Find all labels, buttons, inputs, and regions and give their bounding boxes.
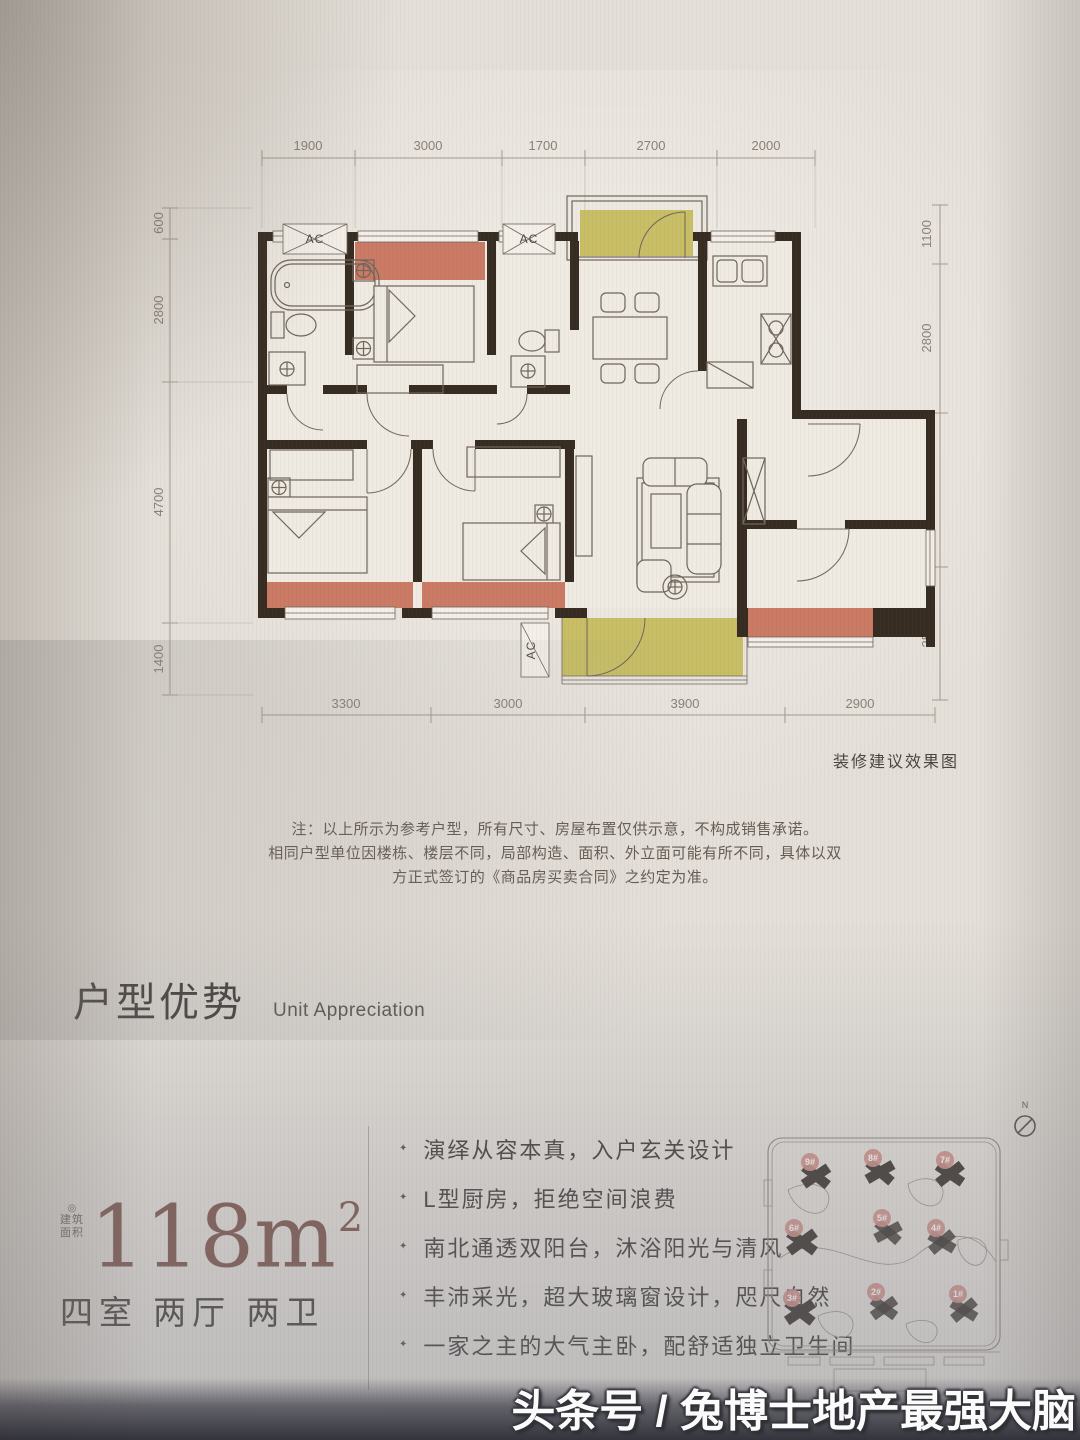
unit-info-block: ◎ 建筑 面积 118m2 四室 两厅 两卫 <box>60 1178 380 1334</box>
bullet-icon: ✦ <box>399 1192 409 1203</box>
disclaimer-line-2: 相同户型单位因楼栋、楼层不同，局部构造、面积、外立面可能有所不同，具体以双方正式… <box>262 842 848 890</box>
dimension-top: 1900 3000 1700 2700 2000 <box>262 138 815 228</box>
bullet-icon: ✦ <box>399 1290 409 1301</box>
svg-text:AC: AC <box>524 641 538 660</box>
svg-text:N: N <box>1022 1100 1029 1110</box>
svg-text:AC: AC <box>306 232 325 246</box>
svg-text:8#: 8# <box>868 1153 878 1163</box>
feature-text: L型厨房，拒绝空间浪费 <box>423 1182 677 1214</box>
watermark-bar: 头条号 / 兔博士地产最强大脑 <box>0 1378 1080 1440</box>
svg-text:7#: 7# <box>940 1155 950 1165</box>
floor-plan: 1900 3000 1700 2700 2000 3300 3000 3900 … <box>115 90 995 790</box>
svg-text:4#: 4# <box>931 1223 941 1233</box>
svg-text:6#: 6# <box>789 1223 799 1233</box>
bullet-icon: ✦ <box>399 1339 409 1350</box>
area-exponent: 2 <box>338 1195 363 1241</box>
svg-text:3300: 3300 <box>332 696 361 711</box>
area-row: ◎ 建筑 面积 118m2 <box>60 1178 380 1284</box>
area-number: 118m <box>90 1188 336 1288</box>
svg-text:1900: 1900 <box>294 138 323 153</box>
feature-text: 南北通透双阳台，沐浴阳光与清风 <box>423 1231 783 1263</box>
disclaimer-notes: 注：以上所示为参考户型，所有尺寸、房屋布置仅供示意，不构成销售承诺。 相同户型单… <box>262 818 848 890</box>
svg-text:3000: 3000 <box>414 138 443 153</box>
site-plan-map: 9# 8# 7# 6# 5# 4# 3# 2# 1# <box>758 1120 1014 1396</box>
area-prefix: ◎ 建筑 面积 <box>60 1204 84 1240</box>
svg-text:2800: 2800 <box>919 324 934 353</box>
area-prefix-line1: 建筑 <box>60 1214 84 1227</box>
svg-text:3900: 3900 <box>671 696 700 711</box>
disclaimer-line-1: 注：以上所示为参考户型，所有尺寸、房屋布置仅供示意，不构成销售承诺。 <box>262 818 848 842</box>
dimension-bottom: 3300 3000 3900 2900 <box>262 696 935 723</box>
svg-text:4700: 4700 <box>151 488 166 517</box>
registered-mark-icon: ◎ <box>60 1204 84 1214</box>
svg-text:1700: 1700 <box>529 138 558 153</box>
bullet-icon: ✦ <box>399 1241 409 1252</box>
svg-text:2#: 2# <box>871 1287 881 1297</box>
svg-text:AC: AC <box>520 232 539 246</box>
floor-plan-svg: 1900 3000 1700 2700 2000 3300 3000 3900 … <box>115 90 995 790</box>
area-value: 118m2 <box>90 1178 361 1284</box>
brochure-page: 1900 3000 1700 2700 2000 3300 3000 3900 … <box>0 0 1080 1440</box>
svg-text:2700: 2700 <box>637 138 666 153</box>
svg-text:5#: 5# <box>877 1213 887 1223</box>
watermark-text: 头条号 / 兔博士地产最强大脑 <box>511 1386 1080 1440</box>
dimension-left: 600 2800 4700 1400 <box>151 208 253 695</box>
bullet-icon: ✦ <box>399 1143 409 1154</box>
svg-text:600: 600 <box>151 212 166 234</box>
render-caption: 装修建议效果图 <box>833 748 959 772</box>
feature-text: 演绎从容本真，入户玄关设计 <box>423 1133 735 1165</box>
section-header: 户型优势 Unit Appreciation <box>73 970 425 1028</box>
section-title-cn: 户型优势 <box>73 970 245 1028</box>
room-layout: 四室 两厅 两卫 <box>60 1286 380 1334</box>
svg-text:3000: 3000 <box>494 696 523 711</box>
svg-text:9#: 9# <box>805 1157 815 1167</box>
svg-text:1#: 1# <box>953 1289 963 1299</box>
svg-text:2800: 2800 <box>151 296 166 325</box>
svg-text:3#: 3# <box>787 1293 797 1303</box>
area-prefix-line2: 面积 <box>60 1227 84 1240</box>
svg-text:2900: 2900 <box>846 696 875 711</box>
svg-text:2000: 2000 <box>752 138 781 153</box>
floor-areas <box>267 241 926 637</box>
svg-text:1100: 1100 <box>919 220 934 248</box>
section-title-en: Unit Appreciation <box>273 1000 425 1022</box>
svg-text:1400: 1400 <box>151 645 166 674</box>
site-buildings <box>784 1159 979 1326</box>
